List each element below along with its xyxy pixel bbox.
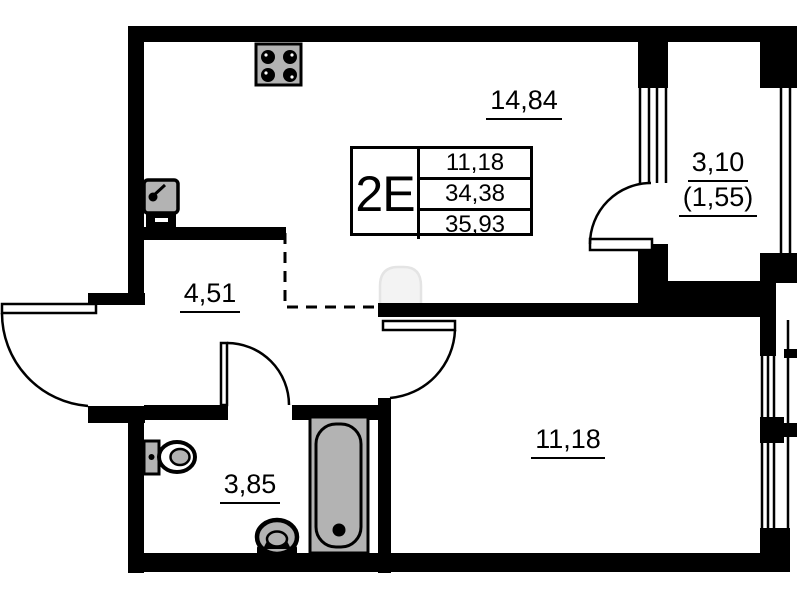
watermark-mark bbox=[380, 267, 421, 309]
wall-segment bbox=[88, 406, 145, 423]
wall-segment bbox=[128, 423, 144, 573]
bathtub-icon bbox=[310, 417, 368, 553]
wall-segment bbox=[760, 417, 784, 443]
stove-icon bbox=[256, 44, 301, 85]
wall-segment bbox=[144, 227, 286, 240]
area-value: 11,18 bbox=[531, 424, 605, 459]
area-value: 3,10 bbox=[688, 147, 749, 182]
door-swing-arc bbox=[2, 313, 88, 406]
unit-info-card: 2E 11,18 34,38 35,93 bbox=[350, 146, 533, 236]
wall-segment bbox=[784, 423, 797, 437]
entrance-door bbox=[2, 304, 96, 406]
wall-segment bbox=[760, 253, 797, 283]
room-label-bedroom: 11,18 bbox=[518, 424, 618, 459]
unit-type-label: 2E bbox=[353, 149, 420, 239]
washbasin-icon bbox=[257, 520, 297, 555]
wall-segment bbox=[378, 303, 640, 317]
room-label-hallway: 4,51 bbox=[162, 278, 258, 313]
bedroom-door bbox=[383, 321, 455, 398]
wall-segment bbox=[378, 398, 391, 573]
wall-segment bbox=[144, 405, 228, 420]
dashed-boundary-line bbox=[285, 233, 374, 307]
wall-segment bbox=[760, 26, 797, 88]
area-value: 4,51 bbox=[180, 278, 241, 313]
bedroom-window-lower bbox=[762, 443, 774, 528]
wall-segment bbox=[128, 26, 797, 42]
balcony-door bbox=[590, 183, 652, 250]
area-counted-value: (1,55) bbox=[679, 182, 758, 217]
area-value: 3,85 bbox=[220, 469, 281, 504]
door-swing-arc bbox=[590, 183, 651, 244]
door-leaf bbox=[590, 239, 652, 250]
wall-segment bbox=[668, 281, 762, 317]
unit-area-row: 34,38 bbox=[420, 180, 530, 211]
door-leaf bbox=[221, 343, 227, 405]
room-label-bathroom: 3,85 bbox=[203, 469, 297, 504]
floor-plan-canvas bbox=[0, 0, 799, 600]
door-leaf bbox=[383, 321, 455, 330]
wall-segment bbox=[760, 283, 776, 356]
balcony-outer-window bbox=[781, 88, 790, 253]
room-label-balcony: 3,10 (1,55) bbox=[660, 147, 776, 217]
wall-segment bbox=[760, 528, 790, 572]
wall-segment bbox=[128, 553, 790, 572]
floor-plan: 14,84 3,10 (1,55) 4,51 3,85 11,18 2E 11,… bbox=[0, 0, 799, 600]
bedroom-window-upper bbox=[762, 356, 774, 417]
unit-area-row: 35,93 bbox=[420, 211, 530, 239]
area-value: 14,84 bbox=[486, 85, 562, 120]
bathroom-door bbox=[221, 343, 289, 405]
wall-segment bbox=[638, 244, 668, 317]
kitchen-sink-icon bbox=[144, 180, 178, 228]
room-label-kitchen-living: 14,84 bbox=[468, 85, 580, 120]
door-swing-arc bbox=[390, 330, 455, 398]
door-swing-arc bbox=[227, 343, 289, 405]
wall-segment bbox=[638, 42, 668, 88]
toilet-icon bbox=[144, 441, 195, 474]
wall-segment bbox=[128, 26, 144, 293]
door-leaf bbox=[2, 304, 96, 313]
unit-area-row: 11,18 bbox=[420, 149, 530, 180]
wall-segment bbox=[784, 349, 797, 358]
